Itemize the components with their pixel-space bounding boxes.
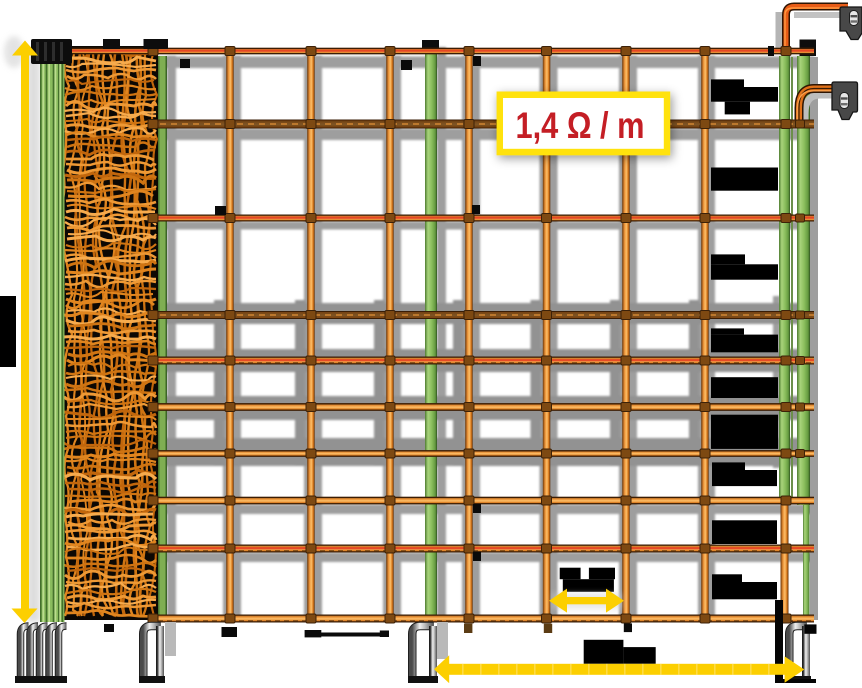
svg-text:1,4 Ω / m: 1,4 Ω / m — [516, 105, 645, 146]
